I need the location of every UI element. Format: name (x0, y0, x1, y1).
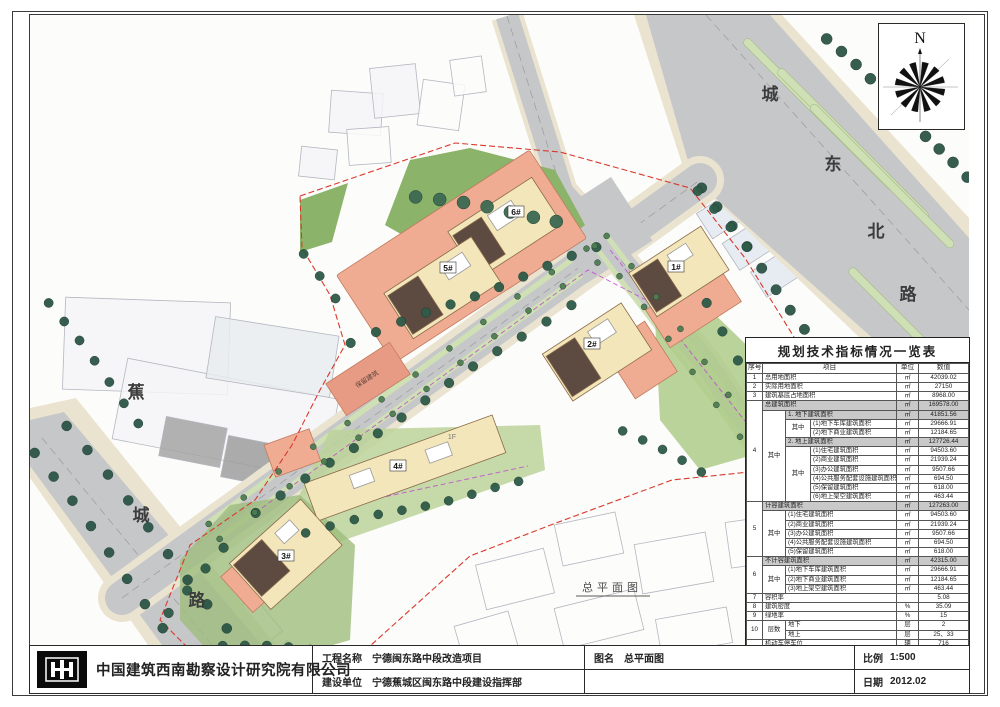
indicator-cell: ㎡ (897, 502, 919, 511)
building-label: 2# (587, 339, 597, 349)
indicator-cell: 容积率 (763, 593, 897, 602)
indicator-cell: 2 (919, 621, 969, 630)
drawing-name-value: 总平面图 (624, 650, 664, 665)
plan-caption: 总平面图 (576, 580, 650, 596)
indicator-cell: 层 (897, 621, 919, 630)
indicator-cell: 建筑密度 (763, 603, 897, 612)
indicator-cell: ㎡ (897, 392, 919, 401)
building-label: 6# (511, 207, 521, 217)
indicator-cell: ㎡ (897, 438, 919, 447)
indicator-cell: 3 (747, 392, 763, 401)
indicator-cell: (3)地上架空建筑面积 (786, 584, 897, 593)
indicator-cell: (5)保留建筑面积 (786, 548, 897, 557)
indicator-cell: ㎡ (897, 465, 919, 474)
drawing-name-cell: 图名 总平面图 (585, 646, 855, 693)
drawing-name-label: 图名 (585, 650, 624, 665)
indicator-cell: 618.00 (919, 548, 969, 557)
road-name-char: 路 (189, 590, 207, 610)
indicator-cell: 127726.44 (919, 438, 969, 447)
indicator-cell: (2)商业建筑面积 (811, 456, 897, 465)
indicator-cell: 12184.65 (919, 428, 969, 437)
indicator-cell: % (897, 612, 919, 621)
indicator-cell: ㎡ (897, 566, 919, 575)
indicator-cell: 9507.66 (919, 529, 969, 538)
indicators-table-body: 1总用地面积㎡42039.022实际用地面积㎡271503建筑基底占地面积㎡89… (747, 373, 969, 685)
indicator-cell: 1 (747, 373, 763, 382)
indicator-cell: 总建筑面积 (763, 401, 897, 410)
client-label: 建设单位 (313, 674, 372, 689)
north-compass: N (878, 23, 965, 130)
building-label: 3# (281, 551, 291, 561)
indicator-cell: 5.08 (919, 593, 969, 602)
indicator-cell: (2)商业建筑面积 (786, 520, 897, 529)
indicator-cell: 25、33 (919, 630, 969, 639)
indicator-cell: % (897, 603, 919, 612)
indicator-cell: 建筑基底占地面积 (763, 392, 897, 401)
indicator-cell: 12184.65 (919, 575, 969, 584)
title-block: 中国建筑西南勘察设计研究院有限公司 工程名称 宁德闽东路中段改造项目 建设单位 … (29, 645, 970, 694)
indicator-cell: ㎡ (897, 447, 919, 456)
road-name-char: 城 (762, 85, 779, 104)
indicator-cell: 8968.00 (919, 392, 969, 401)
indicator-cell: 694.50 (919, 538, 969, 547)
indicator-cell: 计容建筑面积 (763, 502, 897, 511)
indicator-cell: 9 (747, 612, 763, 621)
indicator-cell: 15 (919, 612, 969, 621)
indicator-cell: 2 (747, 383, 763, 392)
indicator-cell: 42039.02 (919, 373, 969, 382)
indicator-cell: 层 (897, 630, 919, 639)
indicator-cell: 不计容建筑面积 (763, 557, 897, 566)
indicator-cell: (6)地上架空建筑面积 (811, 493, 897, 502)
scale-date-cell: 比例 1:500 日期 2012.02 (855, 646, 969, 693)
indicator-cell: ㎡ (897, 483, 919, 492)
project-value: 宁德闽东路中段改造项目 (372, 650, 482, 665)
floor-1f-label: 1F (448, 434, 456, 441)
indicator-cell: 21939.24 (919, 520, 969, 529)
building-label: 4# (393, 461, 403, 471)
indicator-cell: ㎡ (897, 511, 919, 520)
svg-text:总平面图: 总平面图 (582, 580, 642, 594)
indicator-cell: 2. 地上建筑面积 (786, 438, 897, 447)
indicator-cell: ㎡ (897, 410, 919, 419)
indicator-cell: 29666.91 (919, 566, 969, 575)
indicator-cell: 4 (747, 401, 763, 502)
road-name-char: 北 (868, 222, 885, 241)
indicator-cell: ㎡ (897, 575, 919, 584)
building-label: 5# (443, 263, 453, 273)
indicator-cell: 618.00 (919, 483, 969, 492)
company-cell: 中国建筑西南勘察设计研究院有限公司 (30, 646, 313, 693)
indicator-cell: 27150 (919, 383, 969, 392)
indicator-cell: 层数 (763, 621, 786, 639)
indicator-cell: 5 (747, 502, 763, 557)
indicator-cell: ㎡ (897, 474, 919, 483)
indicator-cell: ㎡ (897, 383, 919, 392)
indicator-cell: 其中 (763, 566, 786, 594)
indicator-cell: (3)办公建筑面积 (786, 529, 897, 538)
indicator-cell: 其中 (763, 511, 786, 557)
drawing-sheet: 城东北路蕉城路 1#2#3#4#5#6# 保留建筑 1F 总平面图 N 规划技术… (0, 0, 1000, 707)
indicator-cell: 地上 (786, 630, 897, 639)
indicator-cell: ㎡ (897, 493, 919, 502)
cscec-logo (37, 651, 87, 688)
indicators-table-title: 规划技术指标情况一览表 (746, 338, 969, 363)
indicator-cell: 463.44 (919, 584, 969, 593)
indicator-cell: (2)地下商业建筑面积 (786, 575, 897, 584)
indicators-table-header: 序号 项目 单位 数值 (747, 364, 969, 374)
indicator-cell: (4)公共服务配套设施建筑面积 (811, 474, 897, 483)
indicator-cell: 1. 地下建筑面积 (786, 410, 897, 419)
client-value: 宁德蕉城区闽东路中段建设指挥部 (372, 674, 522, 689)
indicator-cell: 6 (747, 557, 763, 594)
indicator-cell: 29666.91 (919, 419, 969, 428)
indicator-cell: ㎡ (897, 456, 919, 465)
indicator-cell: (1)住宅建筑面积 (811, 447, 897, 456)
indicator-cell: ㎡ (897, 557, 919, 566)
project-label: 工程名称 (313, 650, 372, 665)
indicator-cell (897, 593, 919, 602)
indicator-cell: 10 (747, 621, 763, 639)
indicator-cell: (5)保留建筑面积 (811, 483, 897, 492)
indicator-cell: 9507.66 (919, 465, 969, 474)
indicator-cell: (1)住宅建筑面积 (786, 511, 897, 520)
indicator-cell: 94503.60 (919, 511, 969, 520)
indicator-cell: 94503.60 (919, 447, 969, 456)
indicator-cell: (1)地下车库建筑面积 (811, 419, 897, 428)
indicator-cell: (4)公共服务配套设施建筑面积 (786, 538, 897, 547)
indicator-cell: 41851.56 (919, 410, 969, 419)
road-name-char: 东 (825, 154, 842, 174)
indicator-cell: 其中 (786, 419, 811, 437)
indicator-cell: 463.44 (919, 493, 969, 502)
scale-value: 1:500 (890, 652, 916, 663)
indicator-cell: 127263.00 (919, 502, 969, 511)
indicators-table: 规划技术指标情况一览表 序号 项目 单位 数值 1总用地面积㎡42039.022… (745, 337, 970, 687)
building-label: 1# (671, 262, 681, 272)
north-label: N (914, 30, 926, 47)
indicator-cell: ㎡ (897, 538, 919, 547)
indicator-cell: ㎡ (897, 401, 919, 410)
indicator-cell: (2)地下商业建筑面积 (811, 428, 897, 437)
indicator-cell: 169578.00 (919, 401, 969, 410)
indicator-cell: ㎡ (897, 520, 919, 529)
indicator-cell: ㎡ (897, 584, 919, 593)
indicator-cell: ㎡ (897, 373, 919, 382)
indicator-cell: 21939.24 (919, 456, 969, 465)
indicator-cell: ㎡ (897, 419, 919, 428)
project-cell: 工程名称 宁德闽东路中段改造项目 建设单位 宁德蕉城区闽东路中段建设指挥部 (313, 646, 585, 693)
indicator-cell: 其中 (763, 410, 786, 502)
indicator-cell: 其中 (786, 447, 811, 502)
road-name-char: 城 (133, 506, 150, 525)
indicator-cell: (3)办公建筑面积 (811, 465, 897, 474)
indicator-cell: 42315.00 (919, 557, 969, 566)
indicator-cell: 实际用地面积 (763, 383, 897, 392)
north-arrow (918, 48, 922, 54)
road-name-char: 蕉 (128, 383, 145, 402)
indicator-cell: 总用地面积 (763, 373, 897, 382)
scale-label: 比例 (855, 650, 890, 665)
indicator-cell: 地下 (786, 621, 897, 630)
indicator-cell: ㎡ (897, 529, 919, 538)
indicator-cell: ㎡ (897, 548, 919, 557)
road-name-char: 路 (900, 284, 918, 304)
indicator-cell: 694.50 (919, 474, 969, 483)
date-value: 2012.02 (890, 676, 926, 687)
indicator-cell: 7 (747, 593, 763, 602)
indicator-cell: 8 (747, 603, 763, 612)
indicator-cell: (1)地下车库建筑面积 (786, 566, 897, 575)
indicator-cell: 绿地率 (763, 612, 897, 621)
indicator-cell: ㎡ (897, 428, 919, 437)
date-label: 日期 (855, 674, 890, 689)
indicator-cell: 35.09 (919, 603, 969, 612)
